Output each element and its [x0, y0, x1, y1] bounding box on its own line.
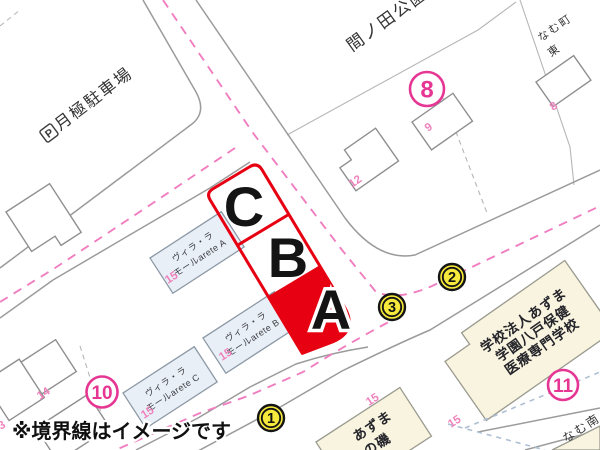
marker-magenta-11-number: 11 — [553, 376, 574, 397]
marker-yellow-3-number: 3 — [388, 300, 396, 316]
plot-b-letter[interactable]: B — [268, 226, 308, 289]
marker-magenta-8-number: 8 — [420, 77, 433, 104]
marker-yellow-2[interactable]: 2 — [439, 264, 465, 290]
marker-yellow-1[interactable]: 1 — [258, 405, 284, 431]
marker-yellow-2-number: 2 — [448, 270, 456, 286]
marker-magenta-11[interactable]: 11 — [548, 370, 578, 400]
plot-a-letter[interactable]: A — [311, 278, 351, 341]
marker-yellow-3[interactable]: 3 — [379, 294, 405, 320]
marker-magenta-10[interactable]: 10 — [87, 377, 118, 408]
marker-magenta-8[interactable]: 8 — [410, 72, 444, 106]
marker-yellow-1-number: 1 — [267, 411, 275, 427]
boundary-disclaimer-note: ※境界線はイメージです — [12, 419, 231, 443]
marker-magenta-10-number: 10 — [91, 383, 112, 404]
plot-c-letter[interactable]: C — [224, 175, 264, 238]
location-map: ヴィラ・ラ モールarete A ヴィラ・ラ モールarete B ヴィラ・ラ … — [0, 0, 600, 450]
map-canvas: ヴィラ・ラ モールarete A ヴィラ・ラ モールarete B ヴィラ・ラ … — [0, 0, 600, 450]
